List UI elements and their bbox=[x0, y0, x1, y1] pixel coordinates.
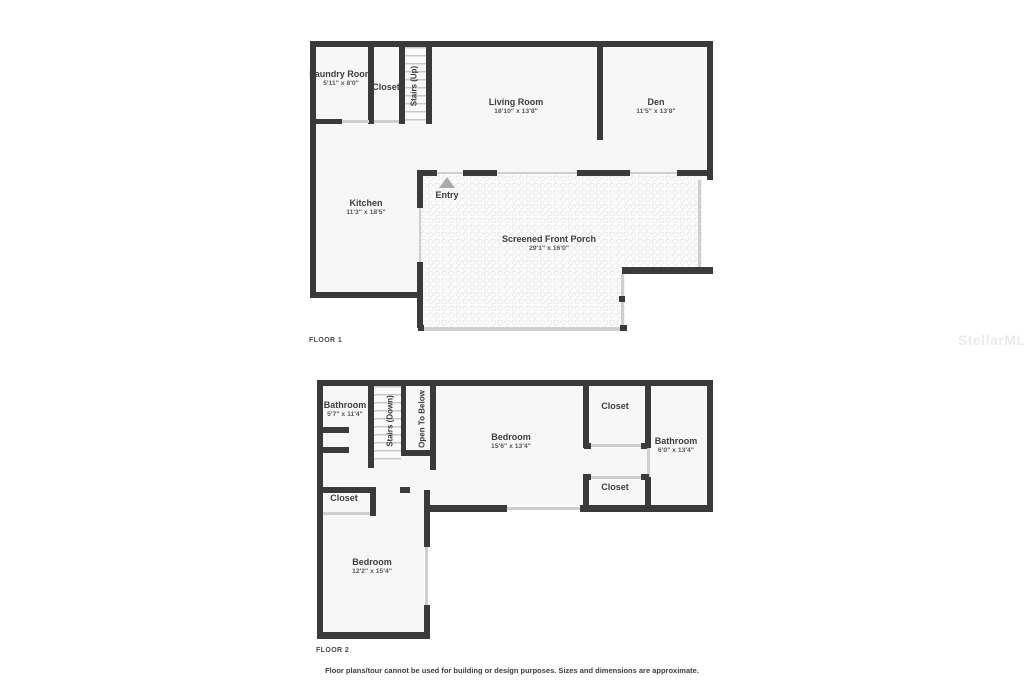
room-label-kitchen: Kitchen 11'3" x 18'5" bbox=[346, 198, 386, 217]
room-name: Bathroom bbox=[324, 400, 367, 410]
room-name: Kitchen bbox=[346, 198, 386, 208]
room-label-closet-top: Closet bbox=[601, 401, 629, 411]
wall-segment bbox=[317, 380, 323, 639]
wall-segment bbox=[584, 443, 591, 449]
window-opening bbox=[630, 172, 677, 174]
wall-segment bbox=[677, 170, 713, 176]
room-dims: 29'1" x 16'0" bbox=[502, 244, 596, 253]
room-name: Entry bbox=[435, 190, 458, 200]
room-name: Closet bbox=[601, 482, 629, 492]
door-opening bbox=[647, 448, 650, 477]
screen-wall bbox=[422, 327, 624, 331]
room-name: Closet bbox=[601, 401, 629, 411]
room-label-bedroom-main: Bedroom 15'6" x 13'4" bbox=[491, 432, 531, 451]
wall-segment bbox=[316, 119, 342, 124]
wall-segment bbox=[424, 605, 430, 639]
wall-segment bbox=[430, 386, 436, 470]
door-opening bbox=[342, 120, 369, 123]
wall-segment bbox=[641, 474, 649, 480]
room-label-den: Den 11'5" x 13'8" bbox=[636, 97, 676, 116]
door-opening bbox=[323, 512, 370, 515]
door-opening bbox=[591, 476, 642, 479]
room-label-bathroom-right: Bathroom 6'0" x 13'4" bbox=[655, 436, 698, 455]
wall-segment bbox=[645, 386, 651, 448]
room-label-stairs-up: Stairs (Up) bbox=[410, 66, 419, 106]
wall-segment bbox=[583, 474, 589, 512]
wall-segment bbox=[310, 292, 420, 298]
room-name: Living Room bbox=[489, 97, 544, 107]
porch-floor-upper bbox=[420, 175, 702, 270]
room-label-closet1: Closet bbox=[372, 82, 400, 92]
room-label-closet-left: Closet bbox=[330, 493, 358, 503]
screen-post bbox=[620, 325, 627, 331]
wall-segment bbox=[597, 47, 603, 140]
room-dims: 5'7" x 11'4" bbox=[324, 410, 367, 419]
room-name: Bedroom bbox=[352, 557, 392, 567]
room-label-entry: Entry bbox=[435, 190, 458, 200]
room-name: Screened Front Porch bbox=[502, 234, 596, 244]
watermark: StellarMLS bbox=[958, 332, 1024, 348]
screen-wall bbox=[698, 180, 701, 270]
door-opening bbox=[425, 547, 428, 605]
room-label-bathroom-left: Bathroom 5'7" x 11'4" bbox=[324, 400, 367, 419]
room-label-open-to-below: Open To Below bbox=[418, 390, 427, 448]
room-name: Bathroom bbox=[655, 436, 698, 446]
door-opening bbox=[437, 172, 463, 174]
wall-segment bbox=[583, 386, 589, 448]
wall-segment bbox=[645, 477, 651, 512]
floorplan-image: Laundry Room 5'11" x 8'0" Closet Stairs … bbox=[0, 0, 1024, 682]
room-name: Closet bbox=[372, 82, 400, 92]
floor1-tag: FLOOR 1 bbox=[309, 337, 342, 344]
porch-floor-lower bbox=[420, 270, 625, 328]
room-dims: 6'0" x 13'4" bbox=[655, 446, 698, 455]
disclaimer-text: Floor plans/tour cannot be used for buil… bbox=[0, 666, 1024, 675]
wall-segment bbox=[424, 490, 430, 547]
wall-segment bbox=[622, 267, 713, 274]
window-opening bbox=[497, 172, 577, 174]
door-opening bbox=[591, 444, 642, 447]
wall-segment bbox=[430, 505, 507, 512]
wall-segment bbox=[577, 170, 630, 176]
screen-post bbox=[619, 296, 625, 302]
room-dims: 5'11" x 8'0" bbox=[309, 79, 373, 88]
room-dims: 11'5" x 13'8" bbox=[636, 107, 676, 116]
wall-segment bbox=[317, 447, 349, 453]
room-dims: 12'2" x 15'4" bbox=[352, 567, 392, 576]
door-opening bbox=[374, 120, 399, 123]
wall-segment bbox=[707, 41, 713, 180]
room-label-living: Living Room 18'10" x 13'8" bbox=[489, 97, 544, 116]
room-label-closet-bottom: Closet bbox=[601, 482, 629, 492]
room-label-porch: Screened Front Porch 29'1" x 16'0" bbox=[502, 234, 596, 253]
wall-segment bbox=[401, 450, 436, 456]
wall-segment bbox=[417, 170, 423, 208]
room-name: Closet bbox=[330, 493, 358, 503]
room-dims: 18'10" x 13'8" bbox=[489, 107, 544, 116]
room-name: Laundry Room bbox=[309, 69, 373, 79]
wall-segment bbox=[417, 262, 423, 328]
window-opening bbox=[507, 507, 580, 510]
wall-segment bbox=[463, 170, 497, 176]
room-dims: 15'6" x 13'4" bbox=[491, 442, 531, 451]
wall-segment bbox=[317, 511, 323, 516]
room-label-stairs-down: Stairs (Down) bbox=[386, 395, 395, 447]
entry-arrow-icon bbox=[439, 177, 455, 188]
wall-segment bbox=[401, 386, 406, 454]
room-name: Bedroom bbox=[491, 432, 531, 442]
door-opening bbox=[419, 208, 421, 262]
wall-segment bbox=[400, 487, 410, 493]
wall-segment bbox=[317, 632, 430, 639]
floor2-tag: FLOOR 2 bbox=[316, 647, 349, 654]
room-name: Den bbox=[636, 97, 676, 107]
screen-post bbox=[418, 325, 424, 331]
wall-segment bbox=[317, 427, 349, 433]
wall-segment bbox=[370, 511, 376, 516]
room-dims: 11'3" x 18'5" bbox=[346, 208, 386, 217]
wall-segment bbox=[426, 47, 432, 124]
room-label-laundry: Laundry Room 5'11" x 8'0" bbox=[309, 69, 373, 88]
room-label-bedroom-lower: Bedroom 12'2" x 15'4" bbox=[352, 557, 392, 576]
wall-segment bbox=[707, 380, 713, 512]
